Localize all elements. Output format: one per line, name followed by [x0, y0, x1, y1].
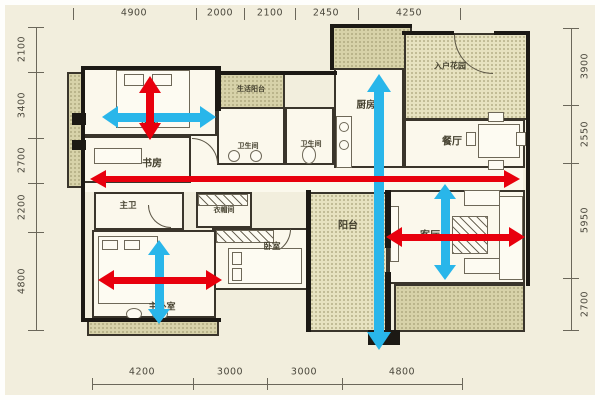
room-label-cloakroom: 衣帽间 — [214, 205, 235, 215]
ruler-tick — [92, 378, 93, 390]
dim-top-3: 2100 — [257, 8, 283, 19]
room-label-study: 书房 — [142, 155, 162, 170]
ruler-tick — [28, 27, 44, 28]
ruler-tick — [196, 8, 197, 20]
ruler-tick — [563, 163, 579, 164]
dim-bottom-4: 4800 — [389, 367, 415, 378]
ruler-tick — [28, 232, 44, 233]
sink — [250, 150, 262, 162]
ruler-tick — [563, 105, 579, 106]
room-label-master-bath: 主卫 — [119, 199, 136, 211]
ruler-tick — [563, 28, 579, 29]
room-label-service-balcony: 生活阳台 — [237, 84, 265, 94]
ruler-tick — [193, 378, 194, 390]
dim-right-3: 5950 — [580, 207, 591, 233]
pillow — [232, 252, 242, 265]
ruler-line — [571, 28, 572, 330]
wall-segment — [72, 113, 86, 125]
dim-top-2: 2000 — [207, 8, 233, 19]
ruler-tick — [244, 8, 245, 20]
floor-plan-canvas: 4900 2000 2100 2450 4250 2100 3400 2700 … — [0, 0, 600, 400]
dim-left-1: 2100 — [17, 36, 28, 62]
chair — [488, 112, 504, 122]
ruler-tick — [267, 378, 268, 390]
chair — [488, 160, 504, 170]
wall-segment — [215, 71, 337, 75]
sink — [228, 150, 240, 162]
room-label-kitchen: 厨房 — [356, 97, 375, 111]
wall-segment — [526, 31, 530, 286]
wall-segment — [81, 66, 219, 70]
ruler-tick — [462, 378, 463, 390]
burner — [339, 122, 349, 132]
dim-left-3: 2700 — [17, 147, 28, 173]
ruler-tick — [563, 330, 579, 331]
desk — [94, 148, 142, 164]
chair — [516, 132, 526, 146]
dim-left-2: 3400 — [17, 92, 28, 118]
ruler-tick — [460, 8, 461, 20]
wall-segment — [402, 31, 454, 35]
wall-segment — [306, 190, 311, 332]
terrace — [394, 284, 525, 332]
ruler-tick — [28, 183, 44, 184]
dim-bottom-2: 3000 — [217, 367, 243, 378]
dim-top-1: 4900 — [121, 8, 147, 19]
pillow — [102, 240, 118, 250]
room-label-bedroom3: 卧室 — [263, 240, 280, 252]
room-label-bath2: 卫生间 — [301, 139, 322, 149]
wall-segment — [330, 24, 412, 28]
room-label-bath1: 卫生间 — [238, 141, 259, 151]
sofa — [464, 190, 500, 206]
dim-left-5: 4800 — [17, 268, 28, 294]
ruler-tick — [358, 8, 359, 20]
dim-left-4: 2200 — [17, 194, 28, 220]
flue-block — [332, 26, 412, 70]
wall-segment — [72, 140, 86, 150]
room-label-balcony: 阳台 — [338, 217, 358, 232]
ruler-tick — [28, 330, 44, 331]
dim-right-2: 2550 — [580, 121, 591, 147]
dining-table — [478, 124, 520, 158]
room-label-dining: 餐厅 — [442, 133, 462, 148]
dim-bottom-3: 3000 — [291, 367, 317, 378]
ruler-tick — [342, 378, 343, 390]
dim-bottom-1: 4200 — [129, 367, 155, 378]
pillow — [124, 240, 140, 250]
ruler-tick — [28, 72, 44, 73]
ruler-tick — [563, 278, 579, 279]
wall-segment — [494, 31, 530, 35]
burner — [339, 140, 349, 150]
wall-segment — [330, 24, 334, 70]
room-label-entry-garden: 入户花园 — [434, 61, 466, 72]
dim-top-5: 4250 — [396, 8, 422, 19]
ruler-line — [92, 384, 462, 385]
dim-right-4: 2700 — [580, 291, 591, 317]
wall-segment — [215, 66, 221, 111]
dim-top-4: 2450 — [313, 8, 339, 19]
pillow — [232, 268, 242, 281]
ruler-tick — [73, 8, 74, 20]
wall-segment — [81, 66, 85, 322]
wall-segment — [385, 272, 391, 332]
sofa — [464, 258, 500, 274]
ruler-tick — [295, 8, 296, 20]
dim-right-1: 3900 — [580, 53, 591, 79]
chair — [466, 132, 476, 146]
ruler-tick — [28, 138, 44, 139]
